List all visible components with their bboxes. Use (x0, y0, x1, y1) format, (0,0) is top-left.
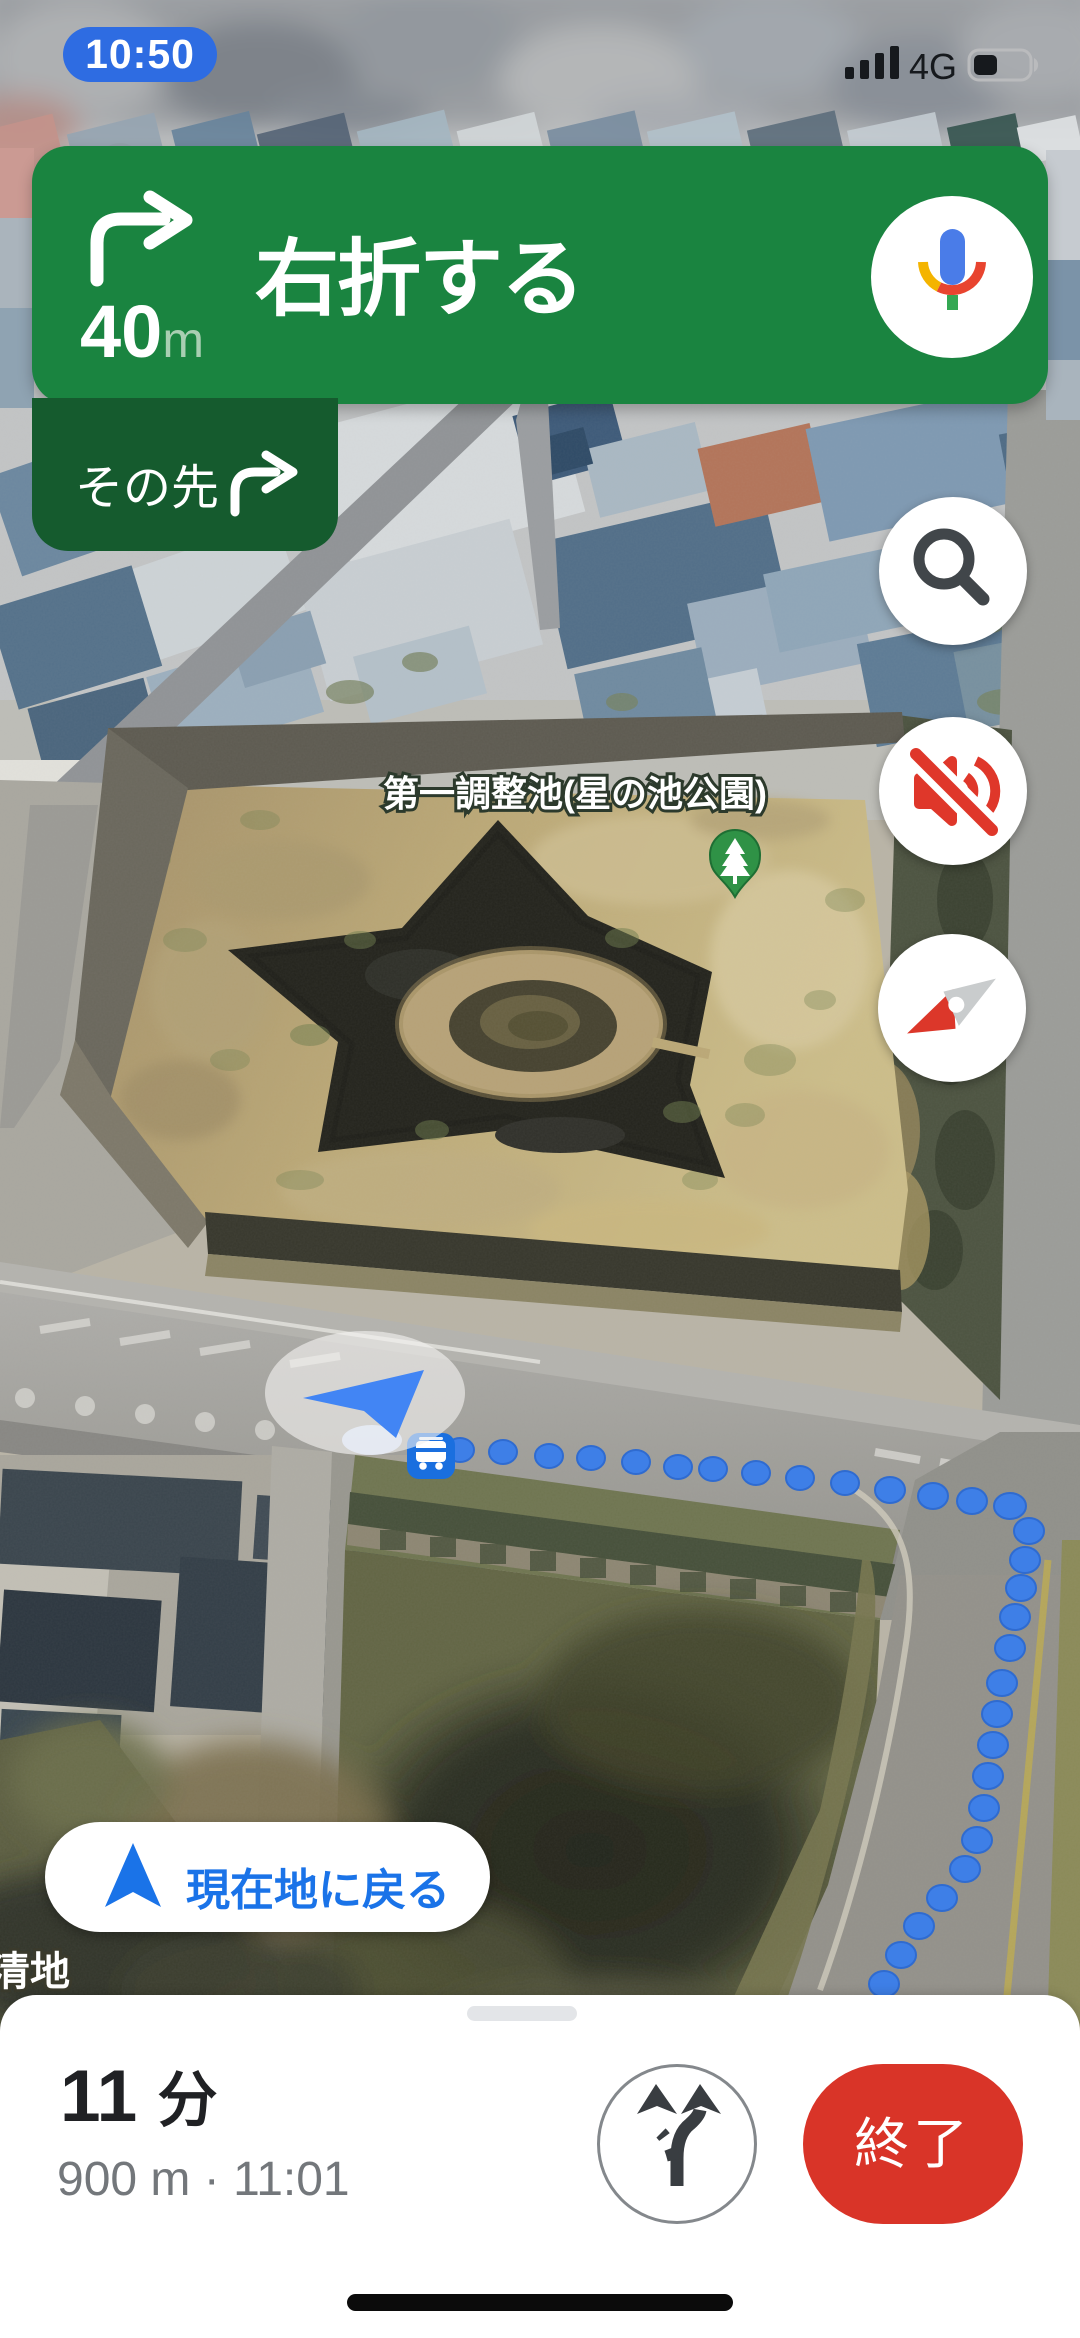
svg-text:清地: 清地 (0, 1950, 70, 1994)
svg-text:第一調整池(星の池公園): 第一調整池(星の池公園) (383, 773, 767, 814)
svg-text:4G: 4G (909, 46, 957, 87)
